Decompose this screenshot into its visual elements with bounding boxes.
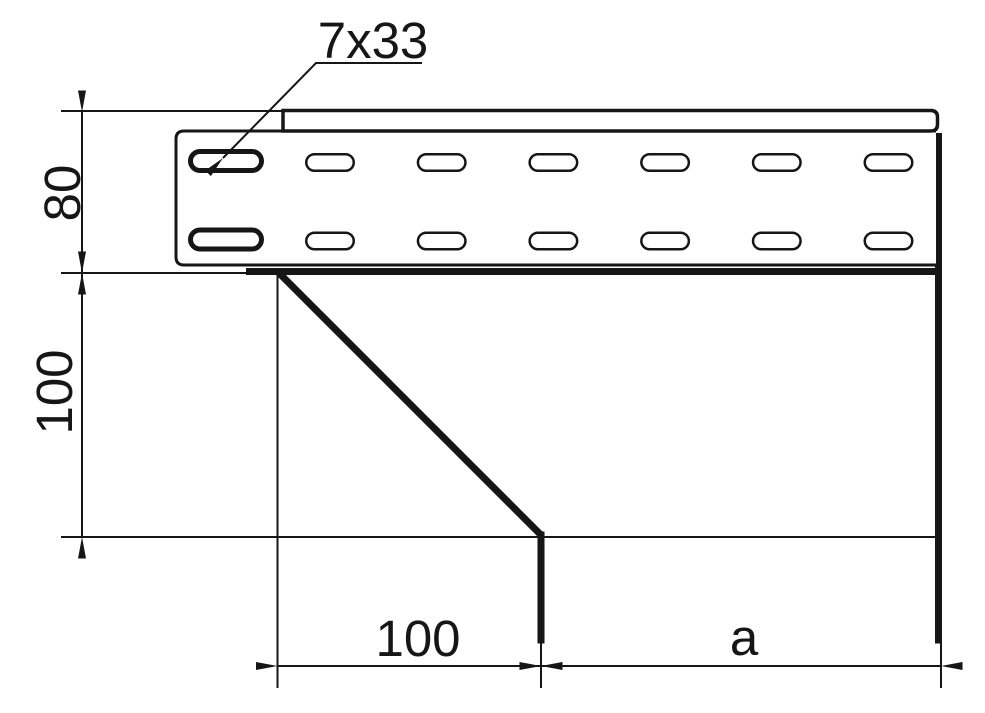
- dim-label-80: 80: [34, 165, 91, 222]
- tray-top-rail: [283, 111, 938, 132]
- dim-label-100-vertical: 100: [26, 349, 83, 434]
- dim-label-a: a: [730, 609, 759, 666]
- technical-drawing: 7x33 80 100 100 a: [0, 0, 985, 713]
- canvas-background: [0, 0, 985, 713]
- tray-side-wall: [176, 131, 936, 265]
- dim-label-100-horizontal: 100: [375, 610, 460, 667]
- callout-label: 7x33: [318, 12, 429, 69]
